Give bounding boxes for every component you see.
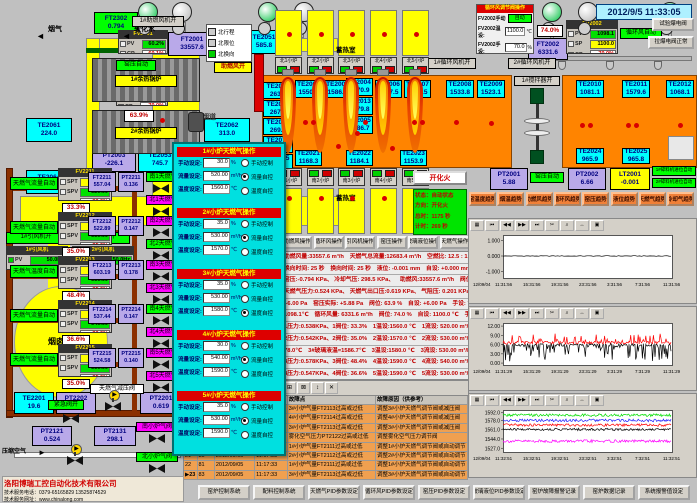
ops-button-2[interactable]: 循环风操作 [314, 236, 344, 249]
chart-toolbar-button-0[interactable]: ▦ [470, 308, 484, 319]
checkbox-icon[interactable] [60, 321, 66, 327]
checkbox-icon[interactable] [118, 104, 124, 106]
chart-toolbar-button-5[interactable]: ✂ [545, 220, 559, 231]
sensor-tag: PT2211 [119, 175, 143, 182]
mode-radio-0[interactable]: 手动控制 [241, 281, 273, 289]
burner-label: 北5小炉 [403, 58, 428, 66]
alarm-cell: 调整3#小炉天燃气调节阀或减压阀 [376, 405, 468, 414]
svg-text:23:31:29: 23:31:29 [579, 369, 597, 374]
circfan2-on-chip: 2#循环风机开 [508, 58, 556, 69]
chart-toolbar-button-2[interactable]: ◀◀ [500, 395, 514, 406]
chart-toolbar-button-3[interactable]: ▶▶ [515, 220, 529, 231]
radio-icon [241, 403, 249, 411]
sensor-tag: PT2121 [33, 428, 71, 436]
manual-setpoint-input[interactable]: 30.0 [203, 158, 230, 168]
sensor-PT2002: PT20026.66 [568, 168, 606, 190]
sensor-TE2008: TE20081533.8 [446, 80, 474, 98]
alarm-dot [414, 32, 419, 37]
alarm-cell: 3#小炉气量FT2113过高或过低 [288, 471, 376, 480]
sensor-value: 557.04 [89, 182, 115, 189]
trend-button-7[interactable]: 天燃气趋势 [639, 192, 666, 206]
sensor-value: -0.001 [611, 179, 649, 187]
burner-label: 北2小炉 [308, 58, 333, 66]
chart-svg-1: 1.0000.000-1.00012/09/0411:31:5615:31:56… [469, 231, 697, 305]
sensor-tag: TE2025 [623, 148, 649, 156]
gas-operation-popup: 1#小炉天燃气操作手动设定:30.0%流量设定:520.00m³/h温度设定:1… [172, 142, 286, 456]
sensor-tag: FT2214 [89, 307, 115, 314]
svg-text:11:31:56: 11:31:56 [663, 282, 681, 287]
checkbox-icon[interactable] [568, 31, 574, 37]
bottom-button-9[interactable]: 系统报警值设定 [638, 485, 690, 500]
popup-section-title: 5#小炉天燃气操作 [177, 391, 281, 401]
mode-radio-1[interactable]: 流量自控 [241, 173, 273, 181]
trend-button-2[interactable]: 烟温趋势 [497, 192, 524, 206]
checkbox-icon[interactable] [60, 288, 66, 289]
status-data-line: 换向时间: 25 秒 换向时间: 25 秒 液位: -0.001 mm 自设: … [282, 264, 468, 276]
sensor-value: 965.8 [623, 156, 649, 164]
mode-radio-0[interactable]: 手动控制 [241, 342, 273, 350]
ops-button-5[interactable]: 玻璃液位操作 [408, 236, 438, 249]
controller-value: 60.1% [142, 50, 166, 54]
alarm-dot [412, 120, 417, 125]
burner-south-4: 南4小炉 [370, 168, 397, 186]
reversal-item: 北限位 [208, 37, 250, 48]
arrow-left-icon: ◄ [36, 31, 48, 41]
temp-setpoint-input[interactable]: 1560.0 [203, 184, 230, 194]
popup-section-2: 2#小炉天燃气操作手动设定:35.0%流量设定:530.00m³/h温度设定:1… [177, 208, 281, 266]
mode-radio-1[interactable]: 流量自控 [241, 295, 273, 303]
chart-toolbar-button-8[interactable]: ▣ [590, 308, 604, 319]
trend-button-6[interactable]: 液位趋势 [611, 192, 638, 206]
svg-text:7:31:29: 7:31:29 [635, 369, 651, 374]
alarm-dot [350, 32, 355, 37]
sensor-value: 313.0 [205, 130, 249, 138]
checkbox-icon[interactable] [60, 200, 66, 201]
controller-value: 35.0% [80, 374, 110, 377]
temp-setpoint-input[interactable]: 1590.0 [203, 428, 230, 438]
alarm-cell: 调整雾化空气压力调节阀 [376, 433, 468, 442]
burner-label: 北4小炉 [371, 58, 396, 66]
led-icon [372, 170, 382, 177]
reversal-status-panel: 状态：自动状态方向：开化火总时：1175 秒计时：269 秒 [413, 189, 467, 235]
alarm-cell: 调整3#小炉天燃气调节阀或自动调节 [376, 471, 468, 480]
chart-toolbar-button-7[interactable]: ↔ [575, 395, 589, 406]
sensor-value: 298.1 [95, 436, 135, 444]
checkbox-icon[interactable] [60, 277, 66, 283]
mode-radio-2[interactable]: 温度自控 [241, 370, 273, 378]
chart-toolbar-button-1[interactable]: ⏮ [485, 395, 499, 406]
alarm-dot [355, 131, 360, 136]
checkbox-icon[interactable] [60, 376, 66, 377]
crusher2-auto-chip: 2#碎料机进位自动 [652, 178, 696, 188]
radio-icon [241, 295, 249, 303]
svg-text:15:32:51: 15:32:51 [523, 456, 541, 461]
manual-setpoint-input[interactable]: 35.0 [203, 219, 230, 229]
alarm-dot [311, 120, 316, 125]
burner-south-3: 南3小炉 [338, 168, 365, 186]
temp-setpoint-input[interactable]: 1570.0 [203, 245, 230, 255]
sensor-TE2025: TE2025965.8 [622, 148, 650, 164]
checkbox-icon[interactable] [60, 365, 66, 371]
sensor-FT2214: FT2214537.44 [88, 304, 116, 324]
sensor-tag: PT2131 [95, 428, 135, 436]
sensor-tag: PT2212 [119, 219, 143, 226]
alarm-cell: 11:17:33 [255, 461, 288, 470]
alarm-dot [160, 118, 165, 123]
alarm-cell: 83 [198, 471, 215, 480]
sensor-tag: TE2062 [205, 122, 249, 130]
sensor-tag: LT2001 [611, 171, 649, 179]
sensor-value: 1523.1 [478, 89, 504, 97]
radio-icon [241, 234, 249, 242]
sensor-value: 1153.9 [401, 158, 426, 166]
burner-nozzle-icon [282, 69, 294, 76]
flow-setpoint-input[interactable]: 530.00 [203, 415, 230, 425]
alarm-dot [626, 123, 631, 128]
test-blast-valve-button[interactable]: 试验爆电阀 [652, 18, 694, 31]
chart-toolbar-button-0[interactable]: ▦ [470, 220, 484, 231]
svg-text:19:31:29: 19:31:29 [551, 369, 569, 374]
popup-section-title: 1#小炉天燃气操作 [177, 147, 281, 157]
sensor-tag: TE2024 [577, 148, 603, 156]
manual-setpoint-input[interactable]: 30.0 [203, 341, 230, 351]
flow-setpoint-input[interactable]: 540.00 [203, 354, 230, 364]
chart-toolbar-button-4[interactable]: ⏭ [530, 395, 544, 406]
status-data-line: 1压力:0.538KPa、1阀位: 33.3% 1温设:1560.0 ℃ 1流设… [282, 322, 468, 334]
popup-section-1: 1#小炉天燃气操作手动设定:30.0%流量设定:520.00m³/h温度设定:1… [177, 147, 281, 205]
checkbox-icon[interactable] [120, 41, 126, 47]
auto-mode-badge: 自动 [508, 14, 532, 23]
alarm-cell: 1#小炉气量FT2111过高或过低 [288, 443, 376, 452]
svg-text:11:31:29: 11:31:29 [495, 369, 513, 374]
chart-toolbar-button-7[interactable]: ↔ [575, 220, 589, 231]
valve-icon[interactable] [152, 382, 170, 394]
fire-button[interactable]: 开化火 [413, 171, 467, 185]
checkbox-icon[interactable] [60, 189, 66, 195]
manual-setpoint-input[interactable]: 35.0 [203, 280, 230, 290]
burner-nozzle-icon [409, 69, 421, 76]
checkbox-icon[interactable] [60, 267, 66, 273]
sensor-FT2212: FT2212522.89 [88, 216, 116, 236]
chart-toolbar-button-6[interactable]: ⌕ [560, 395, 574, 406]
burner-label: 北1小炉 [276, 58, 301, 66]
trend-button-4[interactable]: 循环风趋势 [554, 192, 581, 206]
gas-auto-chip-5: 天燃气流量自动 [10, 353, 58, 366]
regen-south-box [370, 188, 397, 234]
alarm-cell: ▶23 [184, 471, 198, 480]
checkbox-icon[interactable] [60, 223, 66, 229]
mode-radio-2[interactable]: 温度自控 [241, 187, 273, 195]
temp-setpoint-input[interactable]: 1100.0 [505, 27, 526, 37]
sensor-PT2121: PT21210.524 [32, 426, 72, 446]
flow-setpoint-input[interactable]: 530.00 [203, 293, 230, 303]
circfan-valve-panel: 循环风调节阀操作FV2002手动自动FV2002温设:1100.0℃FV2002… [476, 4, 534, 54]
valve-icon[interactable] [152, 271, 170, 283]
svg-text:11:32:51: 11:32:51 [663, 456, 681, 461]
sensor-tag: PT2002 [569, 171, 605, 179]
alarm-cell: 调整1#小炉天燃气调节阀或自动调节 [376, 443, 468, 452]
led-icon [290, 170, 300, 177]
motor-icon [188, 112, 204, 132]
sensor-LT2001: LT2001-0.001 [610, 168, 650, 190]
status-data-line: 窑压:-0.794 KPa、 冷却气压: 298.5 KPa、 助燃风:3355… [282, 275, 468, 287]
alarm-cell: 11:17:33 [255, 471, 288, 480]
radio-icon [241, 370, 249, 378]
svg-text:19:31:56: 19:31:56 [551, 282, 569, 287]
alarm-dot [634, 123, 639, 128]
valve-icon[interactable] [152, 183, 170, 195]
alarm-row[interactable]: ▶23832012/09/0511:17:333#小炉气量FT2113过高或过低… [184, 471, 468, 480]
chart-toolbar-button-1[interactable]: ⏮ [485, 308, 499, 319]
chart-panel-2: ▦⏮◀◀▶▶⏭✂⌕↔▣12.009.006.003.000.0012/09/04… [468, 306, 697, 391]
sensor-value: 5.88 [491, 179, 527, 187]
led-icon [322, 170, 332, 177]
sensor-value: 0.524 [33, 436, 71, 444]
ops-button-3[interactable]: 引风机操作 [345, 236, 375, 249]
svg-text:11:31:29: 11:31:29 [663, 369, 681, 374]
alarm-header-cell: 故障点 [288, 396, 376, 405]
svg-text:11:31:56: 11:31:56 [495, 282, 513, 287]
status-line: 总时：1175 秒 [415, 212, 465, 222]
checkbox-icon[interactable] [60, 244, 66, 245]
nozzle-icon [606, 61, 614, 70]
sensor-FT2215: FT2215524.58 [88, 348, 116, 368]
chart-toolbar-button-8[interactable]: ▣ [590, 395, 604, 406]
chart-toolbar-button-7[interactable]: ↔ [575, 308, 589, 319]
alarm-cell: 3#小炉气量FT2113过高或过低 [288, 424, 376, 433]
status-data-line: 78.0℃ 3#玻璃液温=1586.7℃ 3温设:1580.0 ℃ 3流设: 5… [282, 346, 468, 358]
svg-text:0.000: 0.000 [487, 254, 500, 260]
bottom-button-7[interactable]: 窑炉故障报警记录 [528, 485, 580, 500]
sensor-PT2213: PT22130.178 [118, 260, 144, 280]
reversal-item: 北行程 [208, 26, 250, 37]
arrow-right-icon: ► [38, 448, 48, 458]
sensor-TE2011: TE20111579.6 [622, 80, 650, 98]
controller-FV2002: FV2002PV1098.1SP1100.0CP70.0% [566, 20, 618, 54]
controller-value: 70.0% [140, 102, 166, 106]
mode-radio-2[interactable]: 温度自控 [241, 248, 273, 256]
valve-icon[interactable] [62, 413, 80, 425]
alarm-cell: 调整4#小炉天燃气调节阀或减压阀 [376, 414, 468, 423]
valve-icon[interactable] [152, 359, 170, 371]
alarm-cell: 81 [198, 461, 215, 470]
flow-setpoint-input[interactable]: 520.00 [203, 171, 230, 181]
checkbox-icon[interactable] [120, 51, 126, 54]
popup-section-3: 3#小炉天燃气操作手动设定:35.0%流量设定:530.00m³/h温度设定:1… [177, 269, 281, 327]
radio-icon [241, 431, 249, 439]
svg-text:7:31:56: 7:31:56 [635, 282, 651, 287]
svg-text:9.00: 9.00 [490, 333, 500, 339]
sensor-value: 603.19 [89, 270, 115, 277]
mode-radio-0[interactable]: 手动控制 [241, 220, 273, 228]
chart-toolbar-button-0[interactable]: ▦ [470, 395, 484, 406]
sensor-tag: PT2215 [119, 351, 143, 358]
bottom-button-2[interactable]: 配料控制系统 [253, 485, 305, 500]
mode-radio-2[interactable]: 温度自控 [241, 431, 273, 439]
alarm-cell: 调整2#小炉天燃气调节阀或自动调节 [376, 452, 468, 461]
controller-value: 60.2% [142, 40, 166, 49]
chart-toolbar-button-8[interactable]: ▣ [590, 220, 604, 231]
chart-toolbar-button-4[interactable]: ⏭ [530, 220, 544, 231]
chart-panel-1: ▦⏮◀◀▶▶⏭✂⌕↔▣1.0000.000-1.00012/09/0411:31… [468, 218, 697, 304]
stirrer-icon [530, 88, 544, 104]
sensor-TE2010: TE20101081.1 [576, 80, 604, 98]
checkbox-icon[interactable] [60, 332, 66, 333]
bottom-button-8[interactable]: 窑炉数据记录 [583, 485, 635, 500]
checkbox-icon[interactable] [568, 41, 574, 47]
alarm-cell: 22 [184, 461, 198, 470]
chart-toolbar-button-5[interactable]: ✂ [545, 395, 559, 406]
popup-section-5: 5#小炉天燃气操作手动设定:35.0%流量设定:530.00m³/h温度设定:1… [177, 391, 281, 449]
led-icon [340, 170, 350, 177]
valve-icon[interactable]: ▶ [66, 444, 84, 466]
bottom-button-4[interactable]: 循环风PID参数设定 [363, 485, 415, 500]
sensor-PT2131: PT2131298.1 [94, 426, 136, 446]
popup-section-4: 4#小炉天燃气操作手动设定:30.0%流量设定:540.00m³/h温度设定:1… [177, 330, 281, 388]
bottom-button-6[interactable]: 玻璃液位PID参数设定 [473, 485, 525, 500]
alarm-row[interactable]: 22812012/09/0511:17:331#小炉气量FT2111过高或过低调… [184, 461, 468, 470]
sensor-value: 0.147 [119, 226, 143, 233]
alarm-toolbar-button-10[interactable]: ✕ [325, 382, 338, 394]
sensor-tag: PT2214 [119, 307, 143, 314]
radio-icon [241, 187, 249, 195]
chart-toolbar-button-2[interactable]: ◀◀ [500, 308, 514, 319]
flow-setpoint-input[interactable]: 530.00 [203, 232, 230, 242]
chart-toolbar-button-6[interactable]: ⌕ [560, 220, 574, 231]
hand-setpoint-input[interactable]: 70.0 [505, 43, 526, 53]
alarm-cell: 2012/09/05 [215, 471, 255, 480]
ops-button-4[interactable]: 窑压操作 [377, 236, 407, 249]
trend-button-1[interactable]: 窑温度趋势 [469, 192, 496, 206]
led-icon [353, 170, 363, 177]
alarm-toolbar-button-8[interactable]: ⊠ [297, 382, 310, 394]
svg-text:7:32:51: 7:32:51 [635, 456, 651, 461]
controller-value: 1098.1 [590, 30, 616, 39]
status-block: 助燃风量:33557.6 m³/h 天燃气总流量:12683.4 m³/h 空燃… [281, 251, 469, 380]
burner-label: 南2小炉 [308, 177, 333, 185]
ops-button-6[interactable]: 天燃气操作 [440, 236, 470, 249]
sensor-tag: FT2302 [95, 15, 137, 23]
chart-toolbar-button-6[interactable]: ⌕ [560, 308, 574, 319]
company-box: 洛阳博瑞工控自动化技术有限公司技术服务电话：0379-65165829 1352… [2, 476, 184, 502]
chart-toolbar-button-3[interactable]: ▶▶ [515, 395, 529, 406]
radio-icon [241, 281, 249, 289]
svg-text:1527.0: 1527.0 [485, 446, 501, 452]
chart-toolbar-button-1[interactable]: ⏮ [485, 220, 499, 231]
svg-text:1578.0: 1578.0 [485, 418, 501, 424]
sensor-tag: TE2008 [447, 81, 473, 89]
alarm-cell: 调整1#小炉天燃气调节阀或自动调节 [376, 461, 468, 470]
alarm-toolbar-button-9[interactable]: ↕ [311, 382, 324, 394]
manual-setpoint-input[interactable]: 35.0 [203, 402, 230, 412]
alarm-dot [580, 123, 585, 128]
svg-text:0.00: 0.00 [490, 361, 500, 367]
alarm-dot [303, 120, 308, 125]
status-data-line: 4压力:0.547KPa、4阀位: 36.6% 5温设:1590.0 ℃ 5流设… [282, 369, 468, 380]
bottom-button-5[interactable]: 窑压PID参数设定 [418, 485, 470, 500]
controller-value: 70.0% [590, 50, 616, 54]
alarm-dot [336, 144, 341, 149]
alarm-cell: 1#小炉气量FT2111过高或过低 [288, 461, 376, 470]
ops-button-1[interactable]: 助燃风操作 [282, 236, 312, 249]
mode-radio-2[interactable]: 温度自控 [241, 309, 273, 317]
mode-radio-0[interactable]: 手动控制 [241, 403, 273, 411]
valve-icon[interactable] [148, 463, 166, 475]
chart-toolbar-button-5[interactable]: ✂ [545, 308, 559, 319]
burner-label: 南4小炉 [371, 177, 396, 185]
checkbox-icon[interactable] [60, 179, 66, 185]
temp-setpoint-input[interactable]: 1590.0 [203, 367, 230, 377]
valve-icon[interactable]: ▶ [104, 390, 122, 412]
svg-text:12/09/04: 12/09/04 [473, 282, 491, 287]
valve-icon[interactable] [152, 315, 170, 327]
svg-text:19:32:51: 19:32:51 [551, 456, 569, 461]
circfan1-on-chip: 1#循环风机开 [428, 58, 476, 69]
mode-radio-1[interactable]: 流量自控 [241, 356, 273, 364]
sensor-PT2215: PT22150.140 [118, 348, 144, 368]
checkbox-icon[interactable] [60, 233, 66, 239]
bottom-button-1[interactable]: 窑炉控制系统 [198, 485, 250, 500]
trend-button-5[interactable]: 窑压趋势 [582, 192, 609, 206]
valve-icon[interactable] [148, 433, 166, 445]
sensor-value: 1579.6 [623, 89, 649, 97]
status-line: 计时：269 秒 [415, 222, 465, 232]
sensor-tag: FT2215 [89, 351, 115, 358]
trend-button-8[interactable]: 冷却气趋势 [667, 192, 694, 206]
checkbox-icon[interactable] [60, 355, 66, 361]
sensor-tag: TE2011 [623, 81, 649, 89]
trend-button-3[interactable]: 助燃风趋势 [526, 192, 553, 206]
radio-icon [241, 159, 249, 167]
sensor-tag: PT2213 [119, 263, 143, 270]
temp-setpoint-input[interactable]: 1580.0 [203, 306, 230, 316]
checkbox-icon[interactable] [568, 52, 574, 54]
bottom-button-3[interactable]: 天燃气PID参数设定 [308, 485, 360, 500]
panel-title: 循环风调节阀操作 [477, 5, 533, 13]
mode-radio-0[interactable]: 手动控制 [241, 159, 273, 167]
sensor-value: 1168.3 [296, 158, 321, 166]
chart-toolbar-button-2[interactable]: ◀◀ [500, 220, 514, 231]
blast-valve-normal-button[interactable]: 拉爆电阀正常 [648, 36, 694, 49]
alarm-header-cell: 故障原因（供参考） [376, 396, 468, 405]
svg-text:23:31:56: 23:31:56 [579, 282, 597, 287]
press-auto-chip-2: 窑压自动 [530, 172, 564, 183]
sensor-value: 0.136 [119, 182, 143, 189]
sensor-value: 524.58 [89, 358, 115, 365]
status-data-line: 3压力:0.578KPa、3阀位: 48.4% 4温设:1590.0 ℃ 4流设… [282, 357, 468, 369]
alarm-dot [588, 123, 593, 128]
valve-icon[interactable] [152, 227, 170, 239]
mode-radio-1[interactable]: 流量自控 [241, 234, 273, 242]
svg-text:3:32:51: 3:32:51 [607, 456, 623, 461]
sensor-value: 1184.1 [347, 158, 372, 166]
sensor-TE2009: TE20091523.1 [477, 80, 505, 98]
sensor-value: 224.0 [27, 130, 71, 138]
status-data-line: 天燃气压力:0.524 KPa、 天燃气出口压:0.619 KPa、 气阻压: … [282, 287, 468, 299]
boiler-1-label: 1#余热锅炉 [115, 75, 177, 87]
radio-icon [241, 356, 249, 364]
sensor-value: 6.66 [569, 179, 605, 187]
flue-label: 烟道 [202, 112, 226, 122]
alarm-dot [454, 120, 459, 125]
alarm-dot [350, 196, 355, 201]
checkbox-icon[interactable] [60, 311, 66, 317]
chart-toolbar-button-3[interactable]: ▶▶ [515, 308, 529, 319]
chart-svg-3: 1592.01578.01561.01544.01527.012/09/0411… [469, 406, 697, 479]
gas-auto-chip-3: 天燃气温度自动 [10, 265, 58, 278]
chart-toolbar-button-4[interactable]: ⏭ [530, 308, 544, 319]
mode-radio-1[interactable]: 流量自控 [241, 417, 273, 425]
